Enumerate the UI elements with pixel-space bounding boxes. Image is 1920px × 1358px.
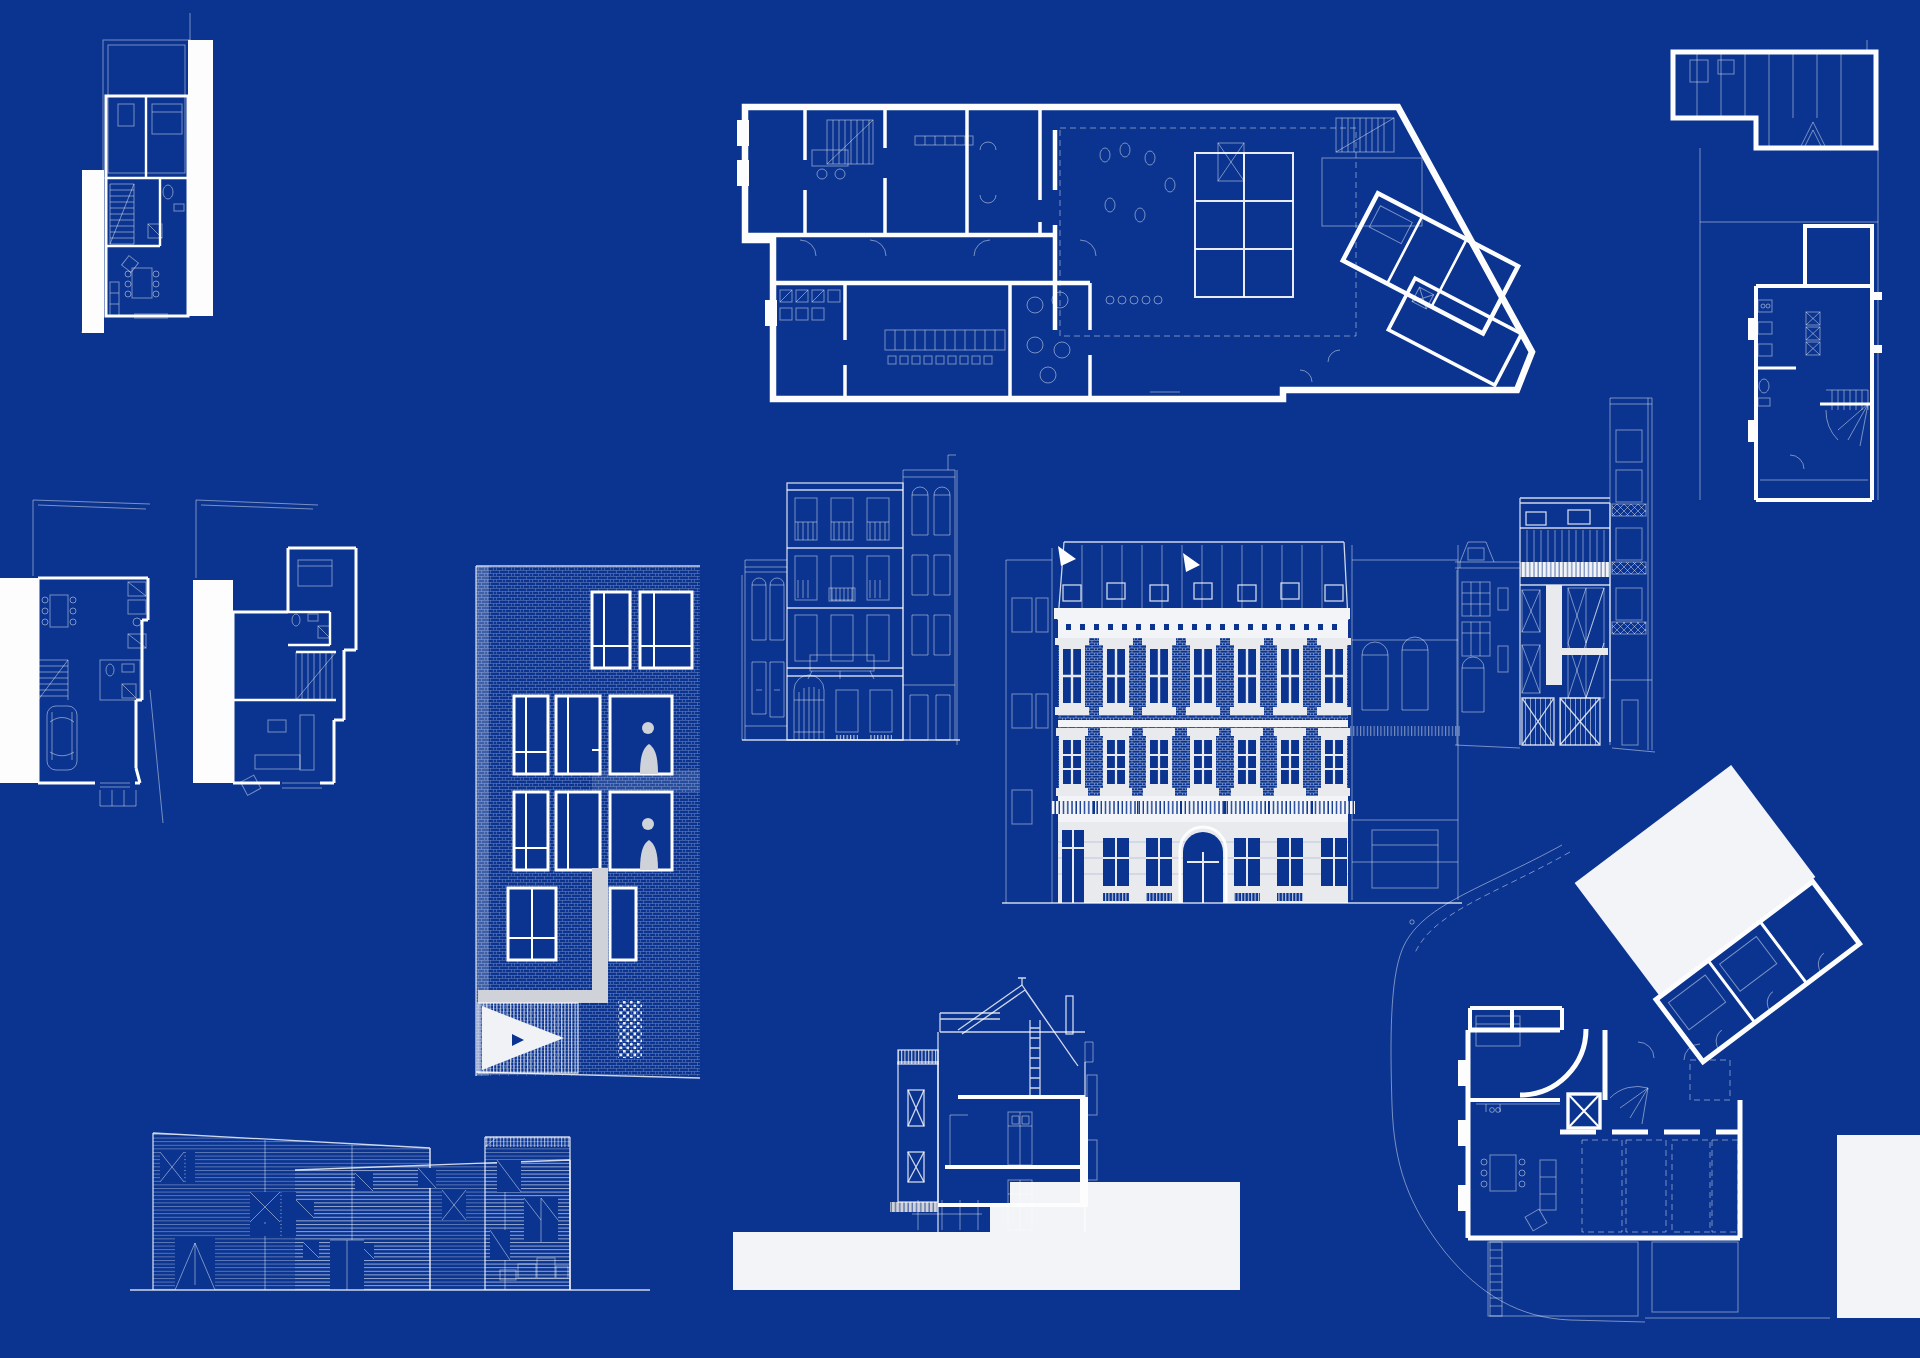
drawing-plan-corner-villa: [1391, 765, 1864, 1322]
drawing-elevation-modern-infill: [1455, 398, 1655, 752]
drawing-elevation-classical-mansion: [1002, 542, 1462, 903]
drawing-elevation-brick-tower: [476, 566, 700, 1078]
drawing-plan-ground-floor-large: [737, 107, 1532, 399]
drawing-elevation-timber-building: [130, 1133, 650, 1290]
drawing-plan-house-garage: [0, 500, 163, 823]
drawing-elevation-street-townhouse: [742, 455, 960, 745]
drawing-plan-house-living: [193, 500, 356, 795]
blank-white-panel: [1837, 1135, 1920, 1318]
drawing-plan-roof-terrace: [1673, 40, 1882, 500]
drawing-plan-small-house: [82, 13, 213, 333]
blueprint-canvas: [0, 0, 1920, 1358]
drawing-section-town-house: [733, 978, 1240, 1290]
blueprint-board: [0, 0, 1920, 1358]
